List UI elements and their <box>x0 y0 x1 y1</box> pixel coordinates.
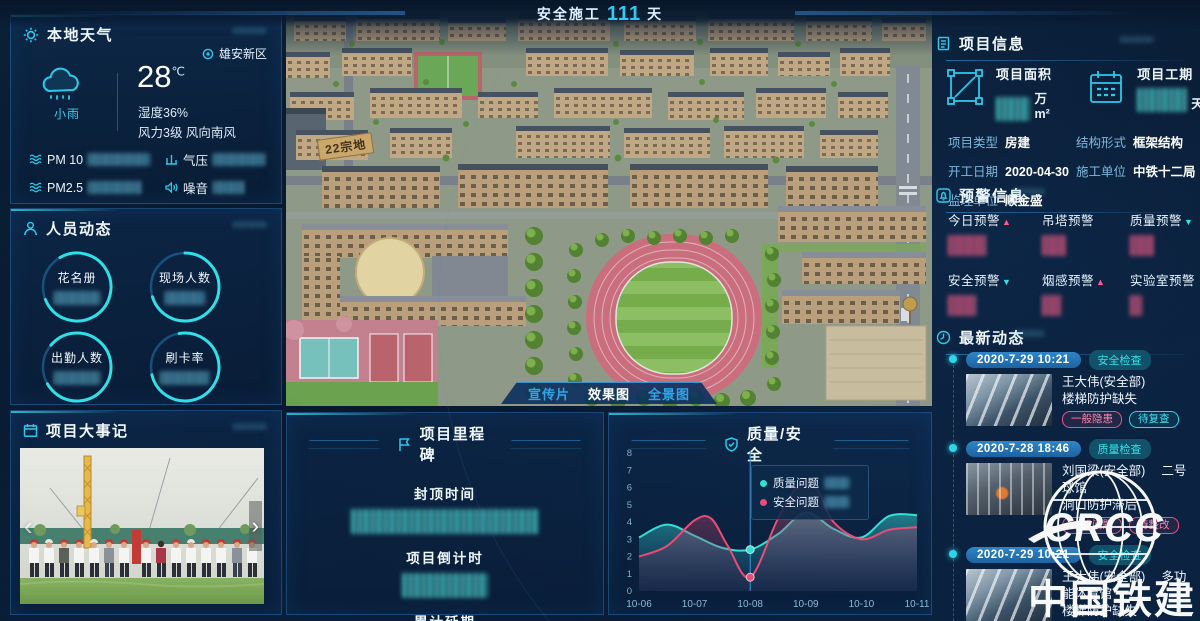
news-issue: 洞口防护滞后 <box>1062 497 1194 514</box>
condition-label: 小雨 <box>37 105 97 122</box>
metric-noise: 噪音 <box>165 178 275 197</box>
redacted-value <box>213 181 245 194</box>
redacted-value <box>1137 88 1187 112</box>
sun-icon <box>23 27 39 43</box>
news-thumbnail <box>966 463 1052 515</box>
series-label: 安全问题 <box>773 494 819 510</box>
project-stats: 项目面积 万m² 项目工期 天 <box>946 64 1200 121</box>
svg-text:10-10: 10-10 <box>849 599 875 610</box>
site-render <box>286 8 932 406</box>
list-item[interactable]: 2020-7-29 10:21 安全检查 王大伟(安全部) 楼梯防护缺失 一般隐… <box>950 350 1194 428</box>
svg-text:10-06: 10-06 <box>626 599 652 610</box>
speaker-icon <box>165 182 178 193</box>
redacted-value <box>825 496 849 508</box>
svg-text:6: 6 <box>627 483 632 494</box>
stat-label: 项目工期 <box>1137 64 1200 83</box>
panel-title: 项目信息 <box>959 33 1025 54</box>
stat-unit: 万m² <box>1034 88 1057 121</box>
news-person: 王大伟(安全部) <box>1062 570 1145 584</box>
personnel-header: 人员动态 <box>11 209 281 244</box>
list-item[interactable]: 2020-7-28 18:46 质量检查 刘国梁(安全部)二号球馆 洞口防护滞后… <box>950 439 1194 534</box>
personnel-panel: 人员动态 花名册 现场人数 出勤人数 刷卡率 <box>10 208 282 405</box>
ring-label: 出勤人数 <box>39 349 115 366</box>
svg-text:0: 0 <box>627 586 632 597</box>
temperature: 28℃ <box>137 59 185 95</box>
redacted-value <box>1042 235 1066 256</box>
pm-icon <box>29 182 42 193</box>
news-date: 2020-7-29 10:21 <box>966 547 1081 563</box>
redacted-value <box>825 477 849 489</box>
stat-duration: 项目工期 天 <box>1087 64 1200 121</box>
redacted-value <box>1042 295 1062 316</box>
trend-up-icon: ▲ <box>1096 277 1105 287</box>
carousel-prev-button[interactable]: ‹ <box>24 513 33 539</box>
events-panel: 项目大事记 <box>10 410 282 615</box>
news-issue: 楼梯防护缺失 <box>1062 603 1194 620</box>
milestone-delay: 累计延期 <box>287 611 603 621</box>
redacted-value <box>213 153 265 166</box>
news-type-badge: 质量检查 <box>1089 439 1151 459</box>
svg-text:8: 8 <box>627 448 632 459</box>
safety-days-title: 安全施工 <box>537 4 601 24</box>
warning-today: 今日预警▲ <box>948 210 1042 256</box>
news-thumbnail <box>966 569 1052 621</box>
series-dot-safety <box>760 499 767 506</box>
redacted-value <box>948 295 976 316</box>
trend-up-icon: ▲ <box>1002 217 1011 227</box>
area-measure-icon <box>946 68 984 106</box>
news-date: 2020-7-29 10:21 <box>966 352 1081 368</box>
redacted-value <box>1130 295 1142 316</box>
warnings-header: 预警信息 <box>936 176 1194 211</box>
quality-safety-panel: 质量/安全 01234567810-0610-0710-0810-0910-10… <box>608 412 932 615</box>
calendar-icon <box>1087 68 1125 106</box>
metric-pm10: PM 10 <box>29 150 165 169</box>
decor-blur <box>1014 330 1044 337</box>
pressure-icon <box>165 154 178 165</box>
warning-lab: 实验室预警 <box>1130 270 1200 316</box>
redacted-value <box>1130 235 1154 256</box>
decor-blur <box>233 423 267 430</box>
warning-quality: 质量预警▼ <box>1130 210 1200 256</box>
project-info-header: 项目信息 <box>936 24 1194 59</box>
status-tag: 待整改 <box>1129 517 1179 534</box>
weather-metrics: PM 10 气压 PM2.5 噪音 <box>29 150 275 197</box>
tab-panorama[interactable]: 全景图 <box>648 384 690 403</box>
decor-blur <box>233 221 267 228</box>
svg-text:2: 2 <box>627 552 632 563</box>
svg-text:4: 4 <box>627 517 632 528</box>
events-header: 项目大事记 <box>11 411 281 446</box>
tab-rendering[interactable]: 效果图 <box>588 384 630 403</box>
news-header: 最新动态 <box>936 318 1194 353</box>
news-person: 刘国梁(安全部) <box>1062 464 1145 478</box>
warning-safety: 安全预警▼ <box>948 270 1042 316</box>
metric-pm25: PM2.5 <box>29 178 165 197</box>
series-label: 质量问题 <box>773 475 819 491</box>
news-type-badge: 安全检查 <box>1089 545 1151 565</box>
location-icon <box>202 48 214 60</box>
warnings-panel: 预警信息 今日预警▲ 吊塔预警 质量预警▼ 安全预警▼ 烟感预警▲ <box>936 176 1194 316</box>
svg-text:7: 7 <box>627 465 632 476</box>
wind: 风力3级 风向南风 <box>138 122 236 141</box>
milestone-countdown: 项目倒计时 <box>287 547 603 598</box>
calendar-icon <box>23 423 38 438</box>
dashboard: 22宗地 宣传片 效果图 全景图 安全施工 111 天 本地天气 <box>0 0 1200 621</box>
warning-crane: 吊塔预警 <box>1042 210 1130 256</box>
location-label: 雄安新区 <box>219 45 267 62</box>
weather-panel: 本地天气 雄安新区 小雨 28℃ 湿度36% 风力3级 风向南风 <box>10 14 282 204</box>
document-icon <box>936 36 951 51</box>
ring-label: 花名册 <box>39 269 115 286</box>
panel-title: 本地天气 <box>47 24 113 45</box>
location-badge: 雄安新区 <box>202 45 267 62</box>
ring-onsite: 现场人数 <box>147 249 223 325</box>
redacted-value <box>996 97 1030 121</box>
svg-text:10-11: 10-11 <box>905 599 929 610</box>
svg-text:10-08: 10-08 <box>737 599 763 610</box>
header-bar: 安全施工 111 天 <box>0 0 1200 27</box>
news-panel: 最新动态 2020-7-29 10:21 安全检查 王大伟(安全部) 楼梯防护缺… <box>936 318 1194 621</box>
stat-label: 项目面积 <box>996 64 1057 83</box>
redacted-value <box>948 235 986 256</box>
milestone-header: 项目里程碑 <box>287 413 603 470</box>
decor-blur <box>233 27 267 34</box>
project-info-panel: 项目信息 项目面积 万m² <box>936 24 1194 174</box>
svg-text:1: 1 <box>627 569 632 580</box>
ring-swipe-rate: 刷卡率 <box>147 329 223 405</box>
tab-promo-video[interactable]: 宣传片 <box>528 384 570 403</box>
milestone-topping: 封顶时间 <box>287 483 603 534</box>
warning-smoke: 烟感预警▲ <box>1042 270 1130 316</box>
series-dot-quality <box>760 480 767 487</box>
svg-text:10-09: 10-09 <box>793 599 819 610</box>
safety-days-count: 111 <box>607 4 641 24</box>
weather-condition: 小雨 <box>37 67 97 122</box>
decor-blur <box>1120 36 1154 43</box>
news-type-badge: 安全检查 <box>1089 350 1151 370</box>
redacted-value <box>88 181 142 194</box>
trend-down-icon: ▼ <box>1002 277 1011 287</box>
flag-icon <box>397 437 412 452</box>
hazard-tag: 一般隐患 <box>1062 411 1122 428</box>
cloud-rain-icon <box>37 67 97 103</box>
redacted-value <box>402 573 488 598</box>
panel-title: 项目里程碑 <box>420 423 494 465</box>
field-structure: 结构形式框架结构 <box>1076 132 1200 151</box>
redacted-value <box>351 509 539 534</box>
svg-text:5: 5 <box>627 500 632 511</box>
trend-down-icon: ▼ <box>1184 217 1193 227</box>
panel-title: 项目大事记 <box>46 420 129 441</box>
pm-icon <box>29 154 42 165</box>
milestone-panel: 项目里程碑 封顶时间 项目倒计时 累计延期 <box>286 412 604 615</box>
divider <box>117 73 118 131</box>
site-3d-view[interactable]: 22宗地 宣传片 效果图 全景图 <box>286 8 932 406</box>
svg-text:10-07: 10-07 <box>682 599 708 610</box>
redacted-value <box>54 371 100 385</box>
news-list: 2020-7-29 10:21 安全检查 王大伟(安全部) 楼梯防护缺失 一般隐… <box>950 350 1194 621</box>
carousel-next-button[interactable]: › <box>249 501 262 551</box>
news-date: 2020-7-28 18:46 <box>966 441 1081 457</box>
stat-unit: 天 <box>1191 93 1200 112</box>
ring-roster: 花名册 <box>39 249 115 325</box>
temp-unit: ℃ <box>171 65 184 79</box>
panel-title: 人员动态 <box>46 218 112 239</box>
redacted-value <box>160 371 210 385</box>
ring-label: 刷卡率 <box>147 349 223 366</box>
news-thumbnail <box>966 374 1052 426</box>
person-icon <box>23 221 38 236</box>
ring-label: 现场人数 <box>147 269 223 286</box>
chart-tooltip: 质量问题 安全问题 <box>751 465 869 520</box>
news-person: 王大伟(安全部) <box>1062 375 1145 389</box>
metric-pressure: 气压 <box>165 150 275 169</box>
decor-blur <box>1014 188 1044 195</box>
svg-text:3: 3 <box>627 534 632 545</box>
humidity: 湿度36% <box>138 102 188 121</box>
stat-area: 项目面积 万m² <box>946 64 1057 121</box>
milestone-photo: ‹ › <box>20 448 264 604</box>
clock-icon <box>936 330 951 345</box>
news-issue: 楼梯防护缺失 <box>1062 391 1179 408</box>
redacted-value <box>165 291 205 305</box>
warnings-grid: 今日预警▲ 吊塔预警 质量预警▼ 安全预警▼ 烟感预警▲ 实验室预警 <box>948 210 1200 316</box>
hazard-tag: 一般问题 <box>1062 517 1122 534</box>
field-type: 项目类型房建 <box>948 132 1076 151</box>
bell-icon <box>936 188 951 203</box>
redacted-value <box>54 291 100 305</box>
status-tag: 待复查 <box>1129 411 1179 428</box>
list-item[interactable]: 2020-7-29 10:21 安全检查 王大伟(安全部)多功能体育馆 楼梯防护… <box>950 545 1194 621</box>
redacted-value <box>88 153 150 166</box>
view-mode-tabs: 宣传片 效果图 全景图 <box>501 382 717 404</box>
safety-days-unit: 天 <box>647 4 663 24</box>
ring-attendance: 出勤人数 <box>39 329 115 405</box>
